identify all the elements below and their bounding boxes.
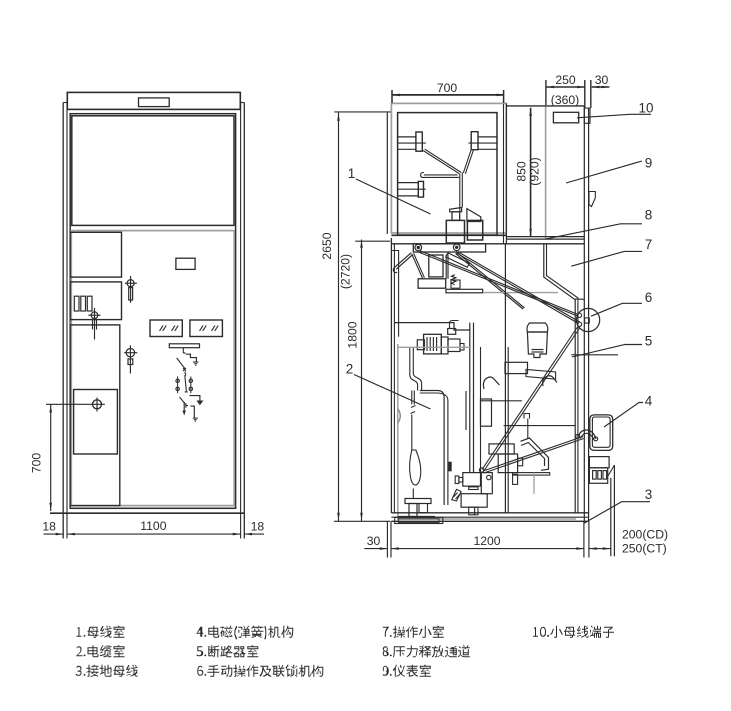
svg-text:1800: 1800: [346, 321, 360, 348]
svg-text:(360): (360): [551, 93, 579, 107]
svg-text:850: 850: [515, 161, 529, 182]
svg-text:30: 30: [367, 534, 381, 548]
svg-text:18: 18: [251, 520, 265, 534]
svg-text:(2720): (2720): [339, 254, 353, 289]
svg-text:10: 10: [638, 101, 653, 116]
svg-text:30: 30: [595, 73, 609, 87]
svg-text:700: 700: [437, 81, 458, 95]
svg-text:1200: 1200: [473, 534, 500, 548]
svg-text:2: 2: [346, 362, 354, 377]
svg-text:1100: 1100: [140, 519, 166, 533]
svg-text:250: 250: [555, 73, 576, 87]
svg-text:5: 5: [645, 334, 653, 349]
svg-text:9: 9: [645, 156, 653, 171]
svg-text:18: 18: [42, 520, 56, 534]
svg-text:2650: 2650: [320, 232, 334, 259]
svg-text:3: 3: [645, 487, 653, 502]
svg-text:8: 8: [645, 208, 653, 223]
svg-text:700: 700: [30, 453, 44, 474]
svg-text:(920): (920): [528, 157, 542, 185]
svg-text:6: 6: [645, 290, 653, 305]
svg-text:1: 1: [348, 166, 356, 181]
svg-text:4: 4: [645, 394, 653, 409]
svg-text:250(CT): 250(CT): [622, 542, 667, 556]
svg-text:200(CD): 200(CD): [622, 528, 668, 542]
svg-text:7: 7: [645, 237, 653, 252]
